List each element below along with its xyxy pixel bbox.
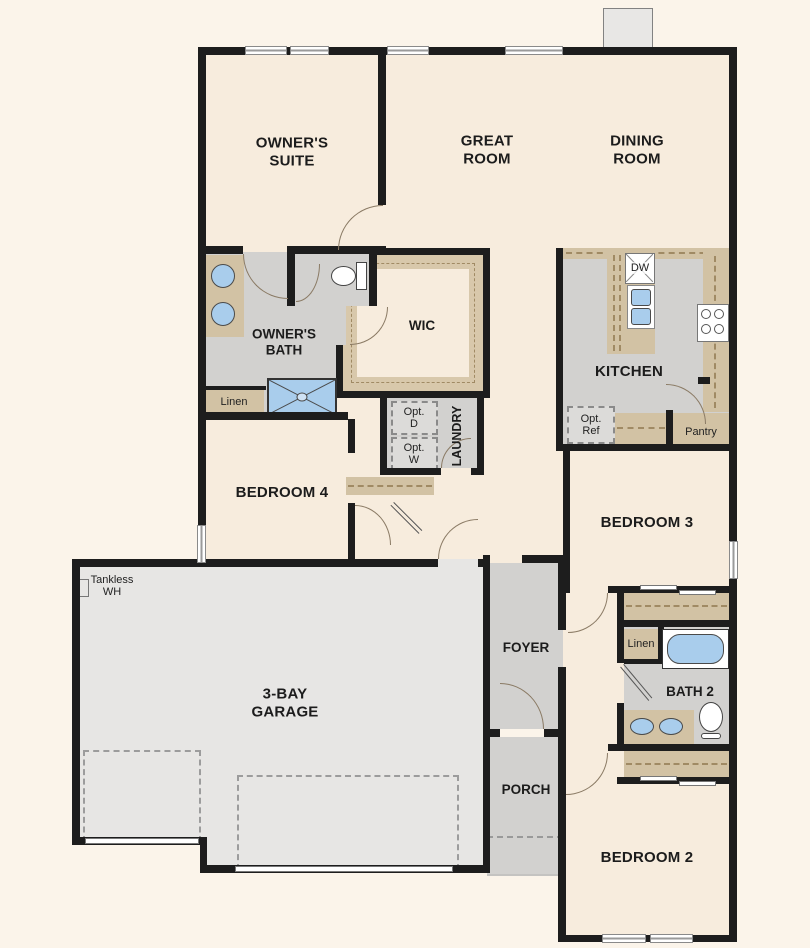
room-label-owners-suite: OWNER'S SUITE [256, 134, 328, 169]
room-label-bedroom3: BEDROOM 3 [601, 514, 694, 532]
porch-dashed-edge [487, 836, 563, 838]
wall [378, 47, 386, 205]
window [290, 46, 329, 55]
room-label-kitchen: KITCHEN [595, 363, 663, 381]
dishwasher-label: DW [630, 262, 650, 274]
sink-icon [630, 718, 654, 735]
wall [477, 398, 484, 474]
sink-icon [659, 718, 683, 735]
garage-bay-outline [83, 750, 201, 842]
shower-icon [267, 378, 337, 416]
porch-floor [487, 737, 563, 875]
wall [617, 744, 737, 751]
wall [72, 559, 80, 845]
label-tankless-wh: Tankless WH [91, 574, 134, 598]
wall [198, 47, 206, 567]
room-label-bedroom4: BEDROOM 4 [236, 484, 329, 502]
wall [198, 246, 243, 254]
wall [617, 620, 733, 627]
kitchen-bottom-counter-dashed [617, 427, 665, 429]
wall [698, 377, 710, 384]
label-pantry: Pantry [685, 426, 717, 438]
wall [72, 559, 438, 567]
wall [348, 419, 355, 453]
wall [483, 729, 500, 737]
stove-icon [697, 304, 729, 342]
dishwasher-icon: DW [625, 253, 655, 284]
sink-icon [211, 264, 235, 288]
wall [348, 503, 355, 565]
bedroom3-closet-dashed [626, 605, 727, 607]
sink-basin-icon [631, 289, 651, 306]
right-wing-floor [558, 51, 733, 942]
wall [483, 559, 490, 873]
label-linen-owners: Linen [221, 396, 248, 408]
window [729, 541, 738, 579]
window [245, 46, 287, 55]
window [602, 934, 646, 943]
room-label-porch: PORCH [502, 782, 551, 798]
sliding-closet-door [640, 585, 677, 590]
room-label-bedroom2: BEDROOM 2 [601, 849, 694, 867]
garage-door [85, 838, 199, 844]
sliding-closet-door [679, 781, 716, 786]
sliding-closet-door [640, 776, 677, 781]
garage-bay-outline [237, 775, 459, 870]
wall [202, 386, 266, 390]
toilet-icon [699, 702, 723, 732]
toilet-icon [331, 266, 356, 286]
room-label-foyer: FOYER [503, 640, 550, 656]
window [650, 934, 693, 943]
wall [380, 398, 387, 474]
label-opt-washer: Opt. W [404, 442, 425, 466]
wall [544, 729, 566, 737]
wall [198, 412, 348, 420]
room-label-great-room: GREAT ROOM [461, 132, 513, 167]
porch-step-edge [487, 874, 563, 876]
wall [558, 935, 737, 942]
wall [380, 468, 441, 475]
sink-icon [211, 302, 235, 326]
wall [556, 444, 737, 451]
wall [369, 246, 377, 306]
label-opt-dryer: Opt. D [404, 406, 425, 430]
room-label-dining-room: DINING ROOM [610, 132, 664, 167]
wall [624, 659, 664, 664]
room-label-bath2: BATH 2 [666, 684, 714, 700]
sliding-closet-door [679, 590, 716, 595]
hall-closet-dashed [348, 485, 432, 487]
wall [617, 703, 624, 744]
room-label-owners-bath: OWNER'S BATH [252, 326, 316, 357]
wic-door-gap [334, 305, 346, 345]
wall [556, 248, 563, 446]
room-label-laundry: LAUNDRY [450, 406, 464, 467]
room-label-wic: WIC [409, 318, 435, 334]
wall [563, 446, 570, 593]
sink-basin-icon [631, 308, 651, 325]
wall [522, 555, 566, 563]
wall [558, 744, 566, 942]
garage-entry-gap [438, 559, 478, 567]
window [505, 46, 563, 55]
wall [729, 47, 737, 942]
wall [608, 744, 617, 751]
wall [287, 246, 295, 306]
label-linen-bath2: Linen [628, 638, 655, 650]
room-label-garage: 3-BAY GARAGE [251, 685, 318, 720]
wall [617, 593, 624, 663]
wall [471, 468, 484, 475]
window [197, 525, 206, 563]
wall [558, 586, 568, 593]
toilet-icon [356, 262, 367, 290]
toilet-base-icon [701, 733, 721, 739]
window [387, 46, 429, 55]
wall [483, 555, 490, 563]
bathtub-basin-icon [667, 634, 724, 664]
island-dashed [613, 255, 621, 351]
garage-door [235, 866, 453, 872]
bedroom2-closet-dashed [626, 763, 727, 765]
label-opt-ref: Opt. Ref [581, 413, 602, 437]
floor-plan: DW [0, 0, 810, 948]
